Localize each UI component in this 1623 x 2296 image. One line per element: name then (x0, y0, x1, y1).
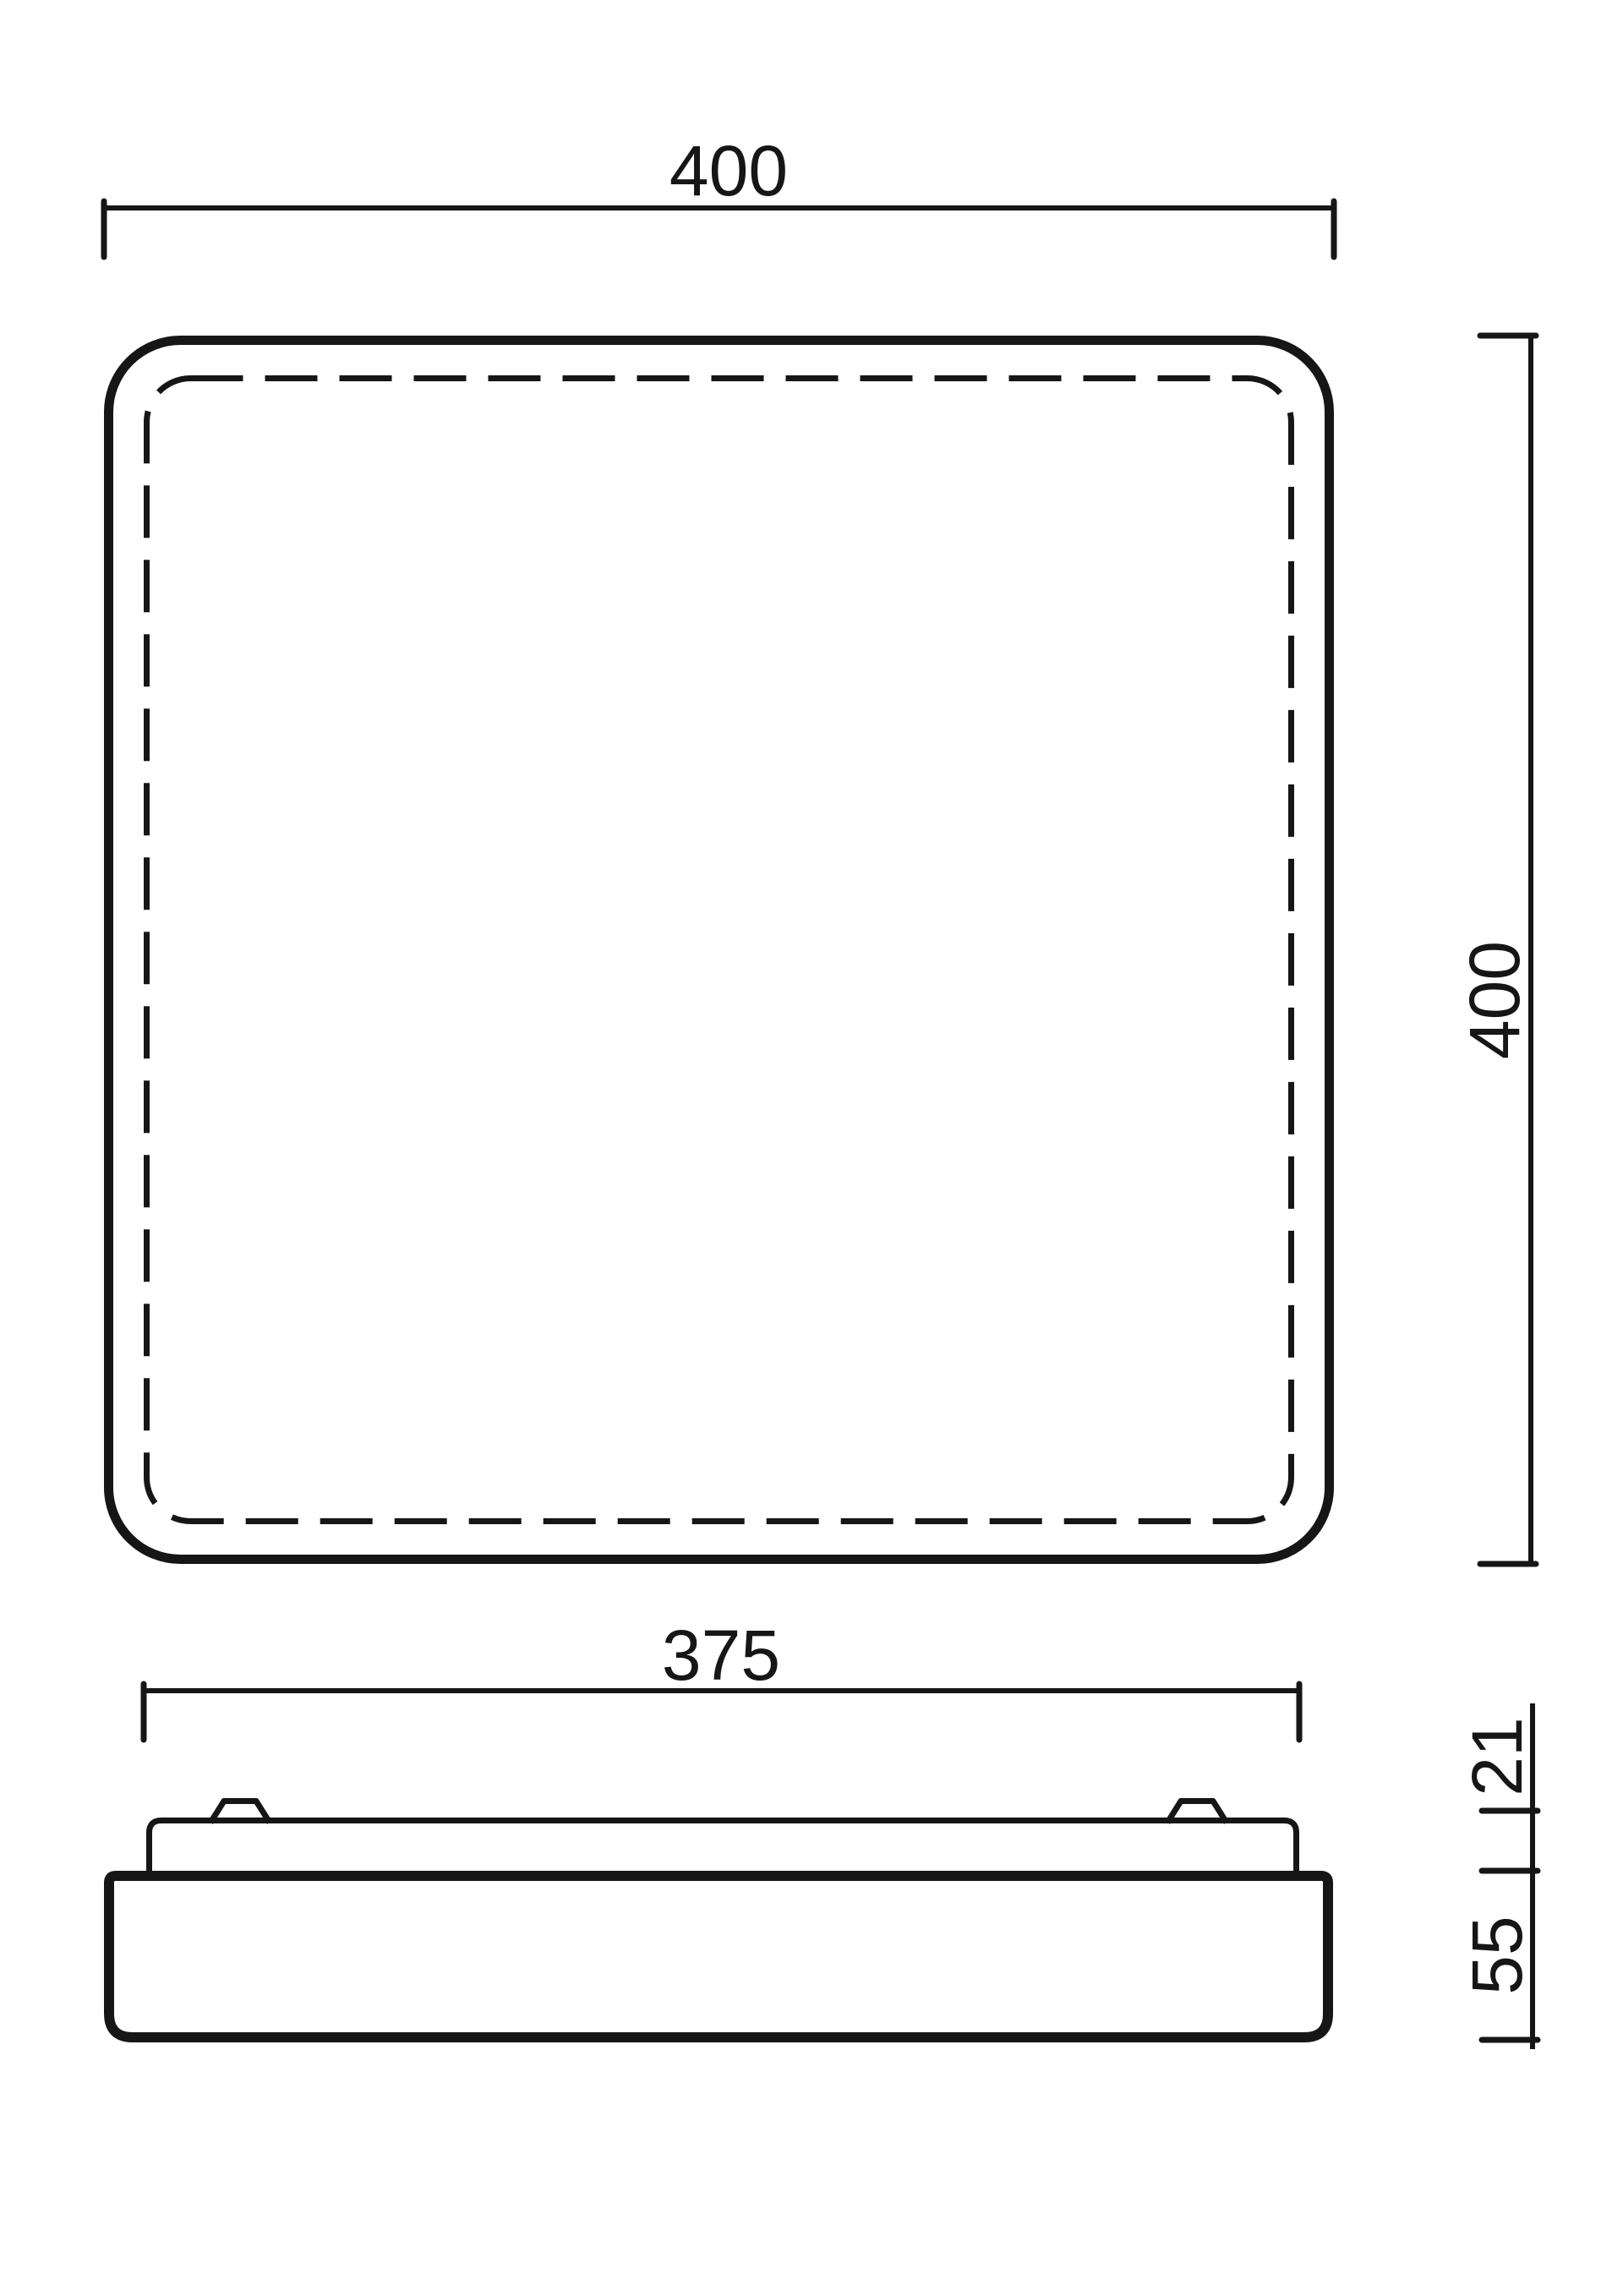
technical-drawing-page: 400 400 375 (0, 0, 1623, 2296)
top-view (109, 341, 1330, 1560)
dimension-label-top-width: 400 (669, 131, 788, 210)
dimension-label-top-height: 400 (1455, 941, 1534, 1059)
dimension-label-base-height: 55 (1457, 1916, 1537, 1994)
top-view-outline (109, 341, 1330, 1560)
luminaire-dimension-drawing: 400 400 375 (0, 0, 1623, 2296)
dimension-label-diffuser-height: 21 (1457, 1717, 1537, 1796)
dimension-label-diffuser-width: 375 (662, 1615, 780, 1695)
top-width-dimension: 400 (104, 131, 1334, 257)
diffuser-width-dimension: 375 (144, 1615, 1299, 1740)
side-height-dimensions: 21 55 (1457, 1703, 1538, 2049)
side-view-base-outline (109, 1876, 1328, 2037)
side-view-diffuser-outline (150, 1821, 1297, 1874)
top-height-dimension: 400 (1455, 336, 1536, 1564)
side-view (109, 1801, 1328, 2038)
